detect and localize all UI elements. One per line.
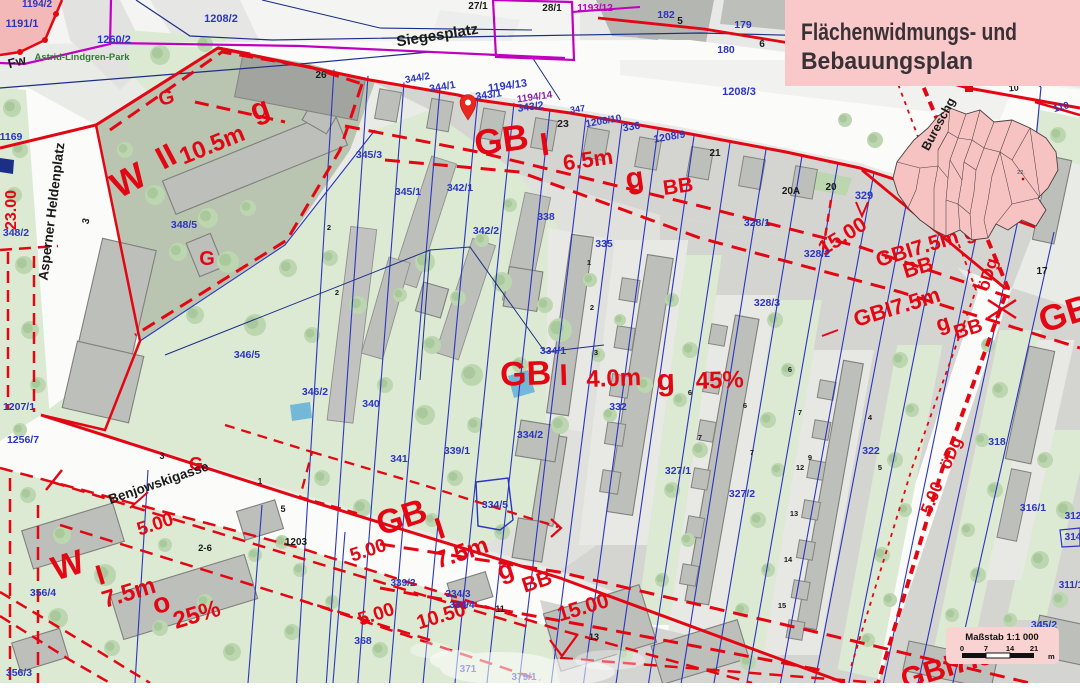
svg-text:2: 2 (327, 223, 331, 232)
svg-text:3: 3 (159, 451, 164, 461)
svg-text:13: 13 (589, 632, 599, 642)
svg-text:327/2: 327/2 (729, 488, 755, 500)
svg-text:328/2: 328/2 (804, 248, 830, 260)
svg-text:339/1: 339/1 (444, 445, 470, 457)
svg-text:7: 7 (698, 433, 702, 442)
svg-text:314: 314 (1065, 532, 1080, 543)
svg-text:2-6: 2-6 (198, 543, 212, 554)
svg-text:356/3: 356/3 (6, 667, 32, 679)
svg-text:Astrid-Lindgren-Park: Astrid-Lindgren-Park (34, 52, 130, 63)
svg-text:3: 3 (594, 348, 598, 357)
svg-text:334/2: 334/2 (517, 429, 543, 441)
svg-text:345/3: 345/3 (356, 149, 382, 161)
svg-text:348/5: 348/5 (171, 219, 197, 231)
svg-text:I: I (559, 359, 568, 392)
svg-text:23: 23 (557, 118, 569, 130)
svg-text:346/5: 346/5 (234, 349, 260, 361)
svg-text:334/1: 334/1 (540, 345, 566, 357)
svg-text:11: 11 (495, 604, 505, 614)
svg-text:1191/1: 1191/1 (5, 18, 38, 30)
svg-text:G: G (199, 248, 215, 270)
svg-text:12: 12 (796, 463, 804, 472)
svg-text:6: 6 (788, 365, 792, 374)
svg-text:m: m (1048, 652, 1055, 661)
svg-text:g: g (656, 364, 675, 398)
svg-text:5: 5 (677, 16, 683, 27)
svg-text:356/4: 356/4 (30, 587, 56, 599)
svg-text:45%: 45% (695, 366, 744, 395)
svg-text:1203: 1203 (285, 537, 308, 548)
svg-text:1256/7: 1256/7 (7, 434, 39, 446)
svg-text:312: 312 (1065, 511, 1080, 522)
svg-text:5: 5 (878, 463, 882, 472)
svg-text:1207/1: 1207/1 (3, 401, 35, 413)
svg-text:27/1: 27/1 (468, 1, 488, 12)
svg-text:7: 7 (798, 408, 802, 417)
svg-text:1194/2: 1194/2 (22, 0, 52, 10)
svg-text:1208/2: 1208/2 (204, 13, 238, 25)
svg-text:BB: BB (661, 173, 694, 200)
svg-text:14: 14 (784, 555, 793, 564)
svg-text:338: 338 (537, 211, 555, 223)
svg-text:328/3: 328/3 (754, 297, 780, 309)
svg-text:342/2: 342/2 (473, 225, 499, 237)
svg-text:22.: 22. (1017, 170, 1025, 176)
svg-text:2: 2 (590, 303, 594, 312)
svg-text:9: 9 (808, 453, 812, 462)
svg-text:345/1: 345/1 (395, 186, 421, 198)
svg-text:GB: GB (472, 116, 531, 164)
svg-text:342/1: 342/1 (447, 182, 473, 194)
svg-text:182: 182 (657, 9, 675, 21)
svg-text:341: 341 (390, 453, 408, 465)
svg-text:328/1: 328/1 (744, 217, 770, 229)
svg-text:346/2: 346/2 (302, 386, 328, 398)
svg-text:316/1: 316/1 (1020, 502, 1046, 514)
svg-text:14: 14 (1006, 644, 1015, 653)
svg-text:2: 2 (335, 288, 339, 297)
svg-text:1193/12: 1193/12 (577, 3, 613, 14)
svg-text:Maßstab 1:1 000: Maßstab 1:1 000 (965, 632, 1038, 643)
svg-text:334/3: 334/3 (445, 589, 470, 600)
svg-text:28/1: 28/1 (542, 3, 562, 14)
svg-text:20: 20 (825, 182, 837, 193)
svg-text:Bebauungsplan: Bebauungsplan (801, 48, 973, 75)
svg-text:347: 347 (569, 103, 585, 115)
svg-text:348/2: 348/2 (3, 227, 29, 239)
svg-text:318: 318 (988, 436, 1006, 448)
svg-text:23.00: 23.00 (3, 190, 20, 230)
svg-text:322: 322 (862, 445, 880, 457)
svg-text:340: 340 (362, 398, 380, 410)
svg-text:4.0m: 4.0m (586, 364, 642, 393)
svg-text:21: 21 (1030, 644, 1038, 653)
svg-text:368: 368 (354, 635, 372, 647)
svg-text:335: 335 (595, 238, 613, 250)
svg-text:179: 179 (734, 19, 752, 31)
svg-text:17: 17 (1036, 266, 1048, 277)
svg-text:15: 15 (778, 601, 786, 610)
svg-text:334/4: 334/4 (449, 600, 474, 611)
svg-text:6: 6 (759, 39, 765, 50)
svg-text:1169: 1169 (0, 131, 23, 143)
svg-text:1260/2: 1260/2 (97, 34, 131, 46)
svg-text:26: 26 (315, 70, 327, 81)
svg-text:Flächenwidmungs- und: Flächenwidmungs- und (801, 19, 1017, 46)
svg-text:339/2: 339/2 (390, 578, 415, 589)
svg-text:311/1: 311/1 (1059, 580, 1080, 591)
svg-text:1208/3: 1208/3 (722, 86, 756, 98)
svg-text:180: 180 (717, 44, 735, 56)
svg-text:GB: GB (499, 354, 551, 394)
svg-text:6: 6 (688, 388, 692, 397)
svg-text:5: 5 (280, 504, 285, 514)
svg-text:329: 329 (855, 190, 873, 202)
svg-text:7: 7 (750, 448, 754, 457)
svg-text:327/1: 327/1 (665, 465, 691, 477)
svg-text:1: 1 (258, 477, 263, 486)
svg-text:334/5: 334/5 (482, 499, 508, 511)
svg-text:13: 13 (790, 509, 798, 518)
svg-text:21: 21 (709, 148, 721, 159)
svg-text:20A: 20A (782, 186, 800, 197)
svg-text:7: 7 (984, 644, 988, 653)
svg-text:1: 1 (587, 258, 591, 267)
svg-text:0: 0 (960, 644, 964, 653)
svg-text:332: 332 (609, 401, 627, 413)
svg-text:6: 6 (743, 401, 747, 410)
